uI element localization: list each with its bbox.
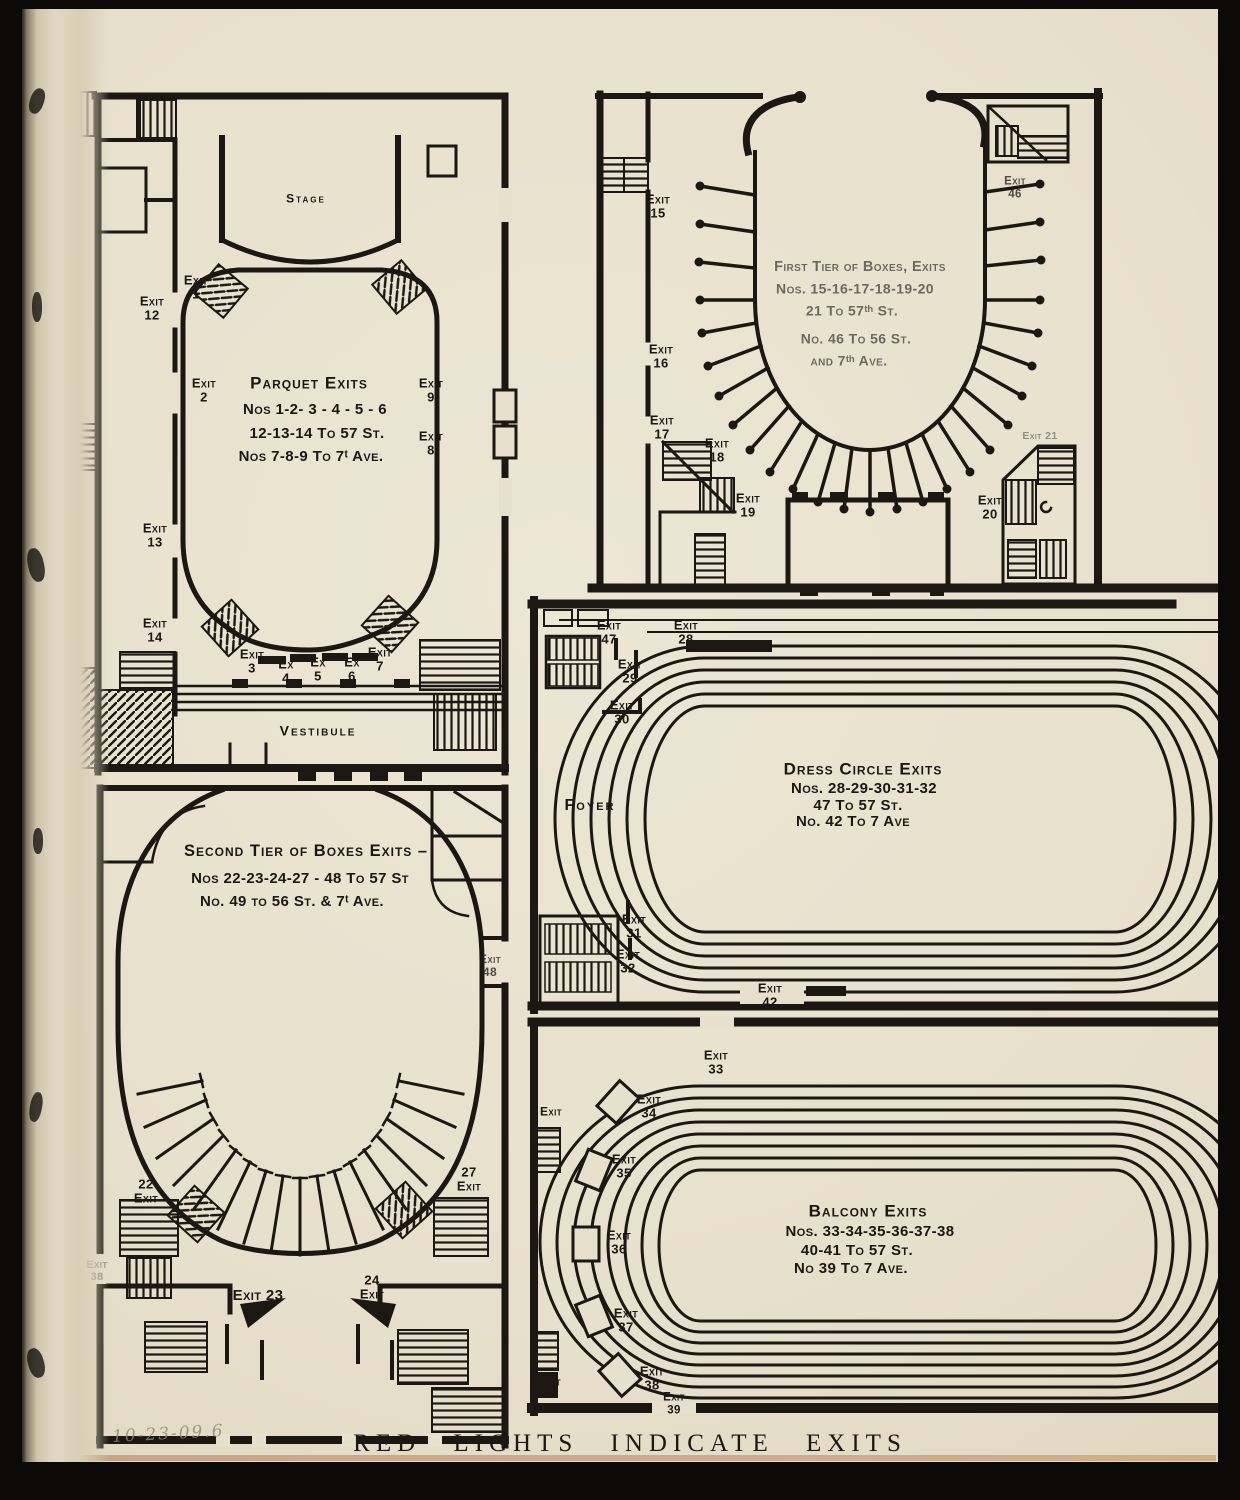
parquet-exit-1-label: Exit 1 xyxy=(184,274,208,303)
first-tier-exit-15-label: Exit 15 xyxy=(646,193,670,222)
parquet-exit-9-label: Exit 9 xyxy=(419,377,443,406)
first-tier-exit-17-label: Exit 17 xyxy=(650,414,674,443)
balcony-title: Balcony Exits xyxy=(809,1203,928,1222)
balcony-exit-36-label: Exit 36 xyxy=(607,1229,631,1258)
parquet-exit-14-label: Exit 14 xyxy=(143,617,167,646)
balcony-exit-35-label: Exit 35 xyxy=(612,1153,636,1182)
parquet-title: Parquet Exits xyxy=(250,375,368,394)
parquet-vestibule-label: Vestibule xyxy=(280,723,357,738)
parquet-exit-8-label: Exit 8 xyxy=(419,430,443,459)
first-tier-exit-19-label: Exit 19 xyxy=(736,492,760,521)
second-tier-note-2: No. 49 to 56 St. & 7ᵗ Ave. xyxy=(200,894,384,911)
balcony-exit-34-label: Exit 34 xyxy=(637,1093,661,1122)
second-tier-exit-27-label: 27 Exit xyxy=(457,1166,481,1195)
first-tier-note-4: and 7ᵗʰ Ave. xyxy=(810,353,887,368)
first-tier-note-3: No. 46 To 56 St. xyxy=(801,331,912,346)
parquet-note-1: Nos 1-2- 3 - 4 - 5 - 6 xyxy=(243,402,387,419)
dress-circle-note-3: No. 42 To 7 Ave xyxy=(796,814,910,831)
dress-circle-exit-29-label: Exit 29 xyxy=(618,658,642,687)
scanned-program-page: Stage Exit 1 Exit 12 Exit 2 Parquet Exit… xyxy=(0,0,1240,1500)
dress-circle-foyer-label: Foyer xyxy=(565,797,616,815)
first-tier-title: First Tier of Boxes, Exits xyxy=(774,260,946,276)
binding-stitch xyxy=(32,292,42,322)
parquet-note-3: Nos 7-8-9 To 7ᵗ Ave. xyxy=(239,449,384,466)
dress-circle-exit-47-label: Exit 47 xyxy=(597,619,621,648)
first-tier-exit-46-label: Exit 46 xyxy=(1004,175,1026,200)
balcony-left-exit-label-lower: Exit xyxy=(539,1375,561,1388)
balcony-note-1: Nos. 33-34-35-36-37-38 xyxy=(786,1224,955,1241)
parquet-exit-2-label: Exit 2 xyxy=(192,377,216,406)
second-tier-title: Second Tier of Boxes Exits – xyxy=(184,842,428,860)
balcony-note-2: 40-41 To 57 St. xyxy=(801,1243,913,1260)
first-tier-exit-21-label: Exit 21 xyxy=(1022,431,1057,443)
photo-frame-top xyxy=(0,0,1240,9)
balcony-exit-39-label: Exit 39 xyxy=(663,1391,685,1416)
second-tier-exit-22-label: 22 Exit xyxy=(134,1178,158,1207)
dress-circle-note-1: Nos. 28-29-30-31-32 xyxy=(791,781,937,798)
photo-frame-bottom xyxy=(0,1462,1240,1500)
balcony-exit-33-label: Exit 33 xyxy=(704,1049,728,1078)
photo-frame-left xyxy=(0,0,22,1500)
second-tier-exit-24-label: 24 Exit xyxy=(360,1274,384,1303)
parquet-exit-12-label: Exit 12 xyxy=(140,295,164,324)
first-tier-exit-18-label: Exit 18 xyxy=(705,437,729,466)
parquet-exit-3-label: Exit 3 xyxy=(240,648,264,677)
photo-frame-right xyxy=(1218,0,1240,1500)
parquet-exit-6-label: Ex 6 xyxy=(344,656,359,685)
dress-circle-exit-30-label: Exit 30 xyxy=(610,699,634,728)
parquet-exit-5-label: Ex 5 xyxy=(310,656,325,685)
dress-circle-exit-42-label: Exit 42 xyxy=(758,982,782,1011)
first-tier-note-2: 21 To 57ᵗʰ St. xyxy=(806,303,898,318)
parquet-note-2: 12-13-14 To 57 St. xyxy=(249,426,384,443)
balcony-exit-38-label: Exit 38 xyxy=(640,1365,664,1394)
parquet-exit-4-label: Ex 4 xyxy=(278,658,293,687)
second-tier-exit-23-label: Exit 23 xyxy=(233,1288,284,1305)
binding-stitch xyxy=(33,828,43,854)
first-tier-note-1: Nos. 15-16-17-18-19-20 xyxy=(776,281,934,296)
dress-circle-exit-31-label: Exit 31 xyxy=(622,913,646,942)
second-tier-exit-48-label: Exit 48 xyxy=(479,953,501,979)
first-tier-exit-16-label: Exit 16 xyxy=(649,343,673,372)
dress-circle-exit-28-label: Exit 28 xyxy=(674,619,698,648)
dress-circle-exit-32-label: Exit 32 xyxy=(616,948,640,977)
red-lights-caption: RED LIGHTS INDICATE EXITS xyxy=(210,1430,1050,1458)
second-tier-note-1: Nos 22-23-24-27 - 48 To 57 St xyxy=(191,871,409,888)
floor-plans-drawing xyxy=(0,0,1240,1500)
balcony-note-3: No 39 To 7 Ave. xyxy=(794,1261,908,1278)
parquet-stage-label: Stage xyxy=(286,192,326,205)
parquet-exit-13-label: Exit 13 xyxy=(143,522,167,551)
parquet-exit-7-label: Exit 7 xyxy=(368,646,392,675)
balcony-left-exit-label-upper: Exit xyxy=(540,1105,562,1118)
first-tier-exit-20-label: Exit 20 xyxy=(978,494,1002,523)
balcony-exit-37-label: Exit 37 xyxy=(614,1307,638,1336)
dress-circle-title: Dress Circle Exits xyxy=(784,761,943,780)
